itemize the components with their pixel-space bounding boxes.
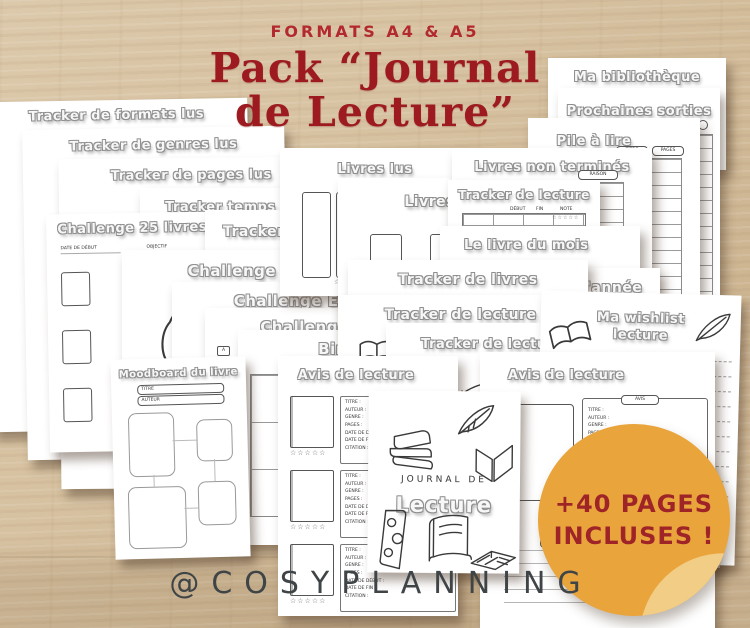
- letter-a: A: [222, 348, 225, 353]
- pack-title-line2: de Lecture”: [0, 88, 750, 136]
- wishlist-title-line2: lecture: [613, 327, 669, 343]
- page-cover-journal-de-lecture: JOURNAL DE Lecture: [367, 390, 521, 573]
- formats-subtitle: FORMATS A4 & A5: [0, 22, 750, 41]
- page-title: Le livre du mois: [440, 226, 640, 253]
- connector-line: [184, 508, 198, 509]
- pages-label: PAGES: [661, 148, 676, 153]
- page-title: Livres lus: [280, 148, 470, 177]
- product-image: Tracker de formats lus Tracker de genres…: [0, 0, 750, 628]
- badge-line1: +40 PAGES: [538, 490, 730, 518]
- page-title: Livres non terminés: [452, 148, 652, 175]
- feather-icon: [692, 310, 733, 345]
- page-title: Tracker de livres: [348, 260, 588, 288]
- page-moodboard-du-livre: Moodboard du livre TITRE AUTEUR: [110, 356, 250, 559]
- book-spine: [302, 192, 331, 278]
- feather-icon: [454, 401, 496, 439]
- brand-handle: @COSYPLANNING: [0, 566, 750, 601]
- wishlist-title-line1: Ma wishlist: [597, 310, 685, 327]
- avis-tab: AVIS: [621, 395, 659, 405]
- moodboard-box: [128, 412, 176, 477]
- star-rating: ☆☆☆☆☆: [290, 449, 326, 457]
- titre-label: TITRE: [141, 387, 154, 392]
- star-rating: ☆☆☆☆☆: [290, 523, 326, 531]
- book-icon: [61, 272, 91, 307]
- book-icon: [63, 388, 93, 423]
- connector-line: [214, 459, 216, 481]
- letter-a-box: A: [217, 346, 230, 356]
- bookmark-doodle: [373, 508, 410, 572]
- book-cover-box: [290, 396, 334, 448]
- moodboard-box: [198, 481, 237, 526]
- book-icon: [62, 330, 92, 365]
- field-titre: TITRE :: [588, 407, 702, 415]
- page-title: Avis de lecture: [480, 352, 715, 383]
- auteur-field: AUTEUR: [137, 394, 224, 406]
- page-title: Challenge 25 livres: [46, 212, 218, 238]
- auteur-label: AUTEUR: [141, 398, 160, 403]
- page-title: Tracker de lecture: [448, 180, 600, 202]
- moodboard-box: [128, 486, 188, 549]
- raison-label: RAISON: [589, 172, 606, 177]
- raison-tab: RAISON: [578, 170, 618, 180]
- badge-line2: INCLUSES !: [538, 522, 730, 550]
- star-rating: ☆☆☆☆☆: [552, 215, 579, 221]
- connector-line: [173, 440, 197, 442]
- moodboard-box: [196, 419, 233, 462]
- date-debut-label: DATE DE DÉBUT: [60, 245, 96, 253]
- field-auteur: AUTEUR :: [588, 415, 702, 423]
- book-cover-box: [290, 470, 334, 522]
- avis-label: AVIS: [635, 397, 645, 402]
- page-title: Moodboard du livre: [110, 356, 246, 381]
- page-title: Avis de lecture: [278, 356, 458, 383]
- field-line: [61, 252, 121, 254]
- pages-tab: PAGES: [652, 146, 684, 156]
- book-stack-doodle: [380, 422, 442, 471]
- pack-title-line1: Pack “Journal: [0, 44, 750, 92]
